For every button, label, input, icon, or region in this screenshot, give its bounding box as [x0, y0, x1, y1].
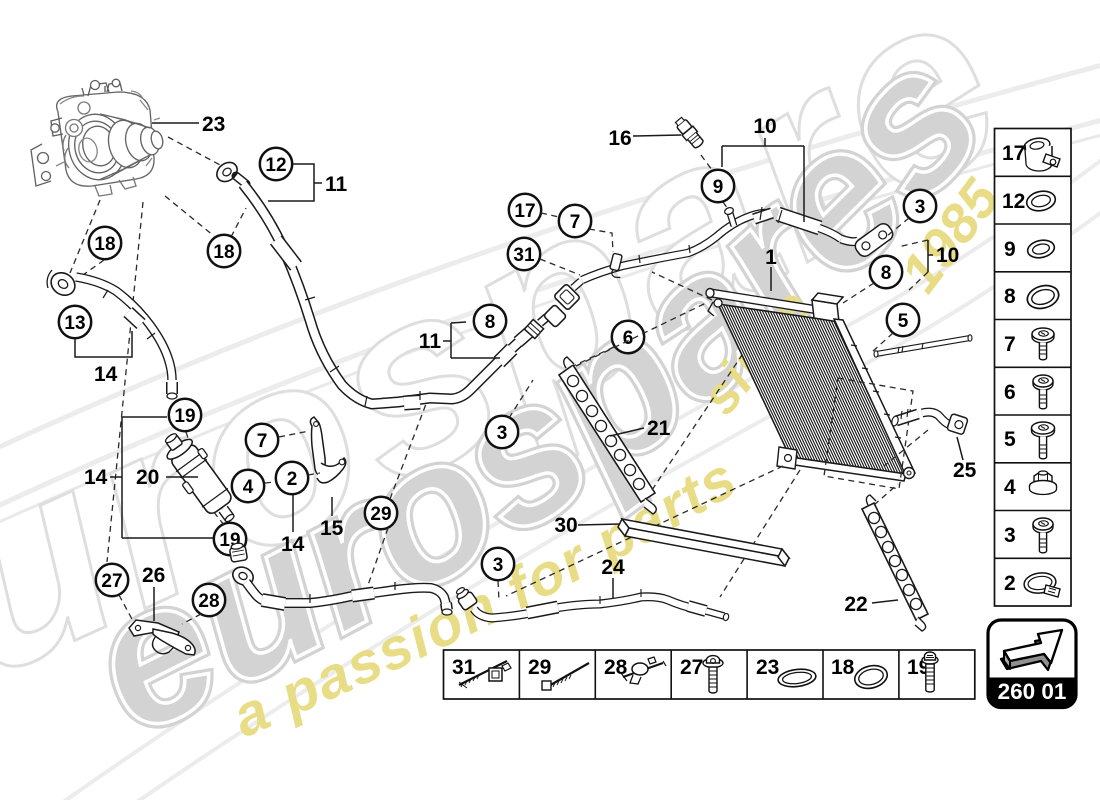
svg-text:12: 12	[265, 155, 286, 176]
svg-text:29: 29	[370, 504, 391, 525]
svg-text:17: 17	[1002, 142, 1025, 165]
svg-text:7: 7	[1004, 333, 1016, 356]
svg-text:14: 14	[94, 363, 118, 386]
svg-text:3: 3	[1004, 524, 1016, 547]
svg-text:2: 2	[287, 469, 298, 490]
svg-text:9: 9	[1004, 238, 1016, 261]
svg-text:2: 2	[1004, 572, 1016, 595]
svg-text:3: 3	[915, 197, 926, 218]
svg-text:15: 15	[320, 517, 344, 540]
svg-text:260 01: 260 01	[998, 679, 1067, 704]
svg-text:28: 28	[198, 591, 219, 612]
svg-text:10: 10	[936, 244, 959, 267]
svg-text:23: 23	[756, 656, 779, 679]
svg-text:30: 30	[554, 514, 577, 537]
svg-text:21: 21	[647, 417, 671, 440]
svg-text:17: 17	[514, 201, 535, 222]
svg-text:4: 4	[243, 477, 254, 498]
svg-text:26: 26	[142, 564, 165, 587]
svg-text:7: 7	[570, 212, 581, 233]
svg-text:23: 23	[202, 113, 225, 136]
svg-text:18: 18	[831, 656, 855, 679]
svg-text:31: 31	[452, 656, 476, 679]
svg-text:10: 10	[753, 115, 776, 138]
svg-text:25: 25	[953, 459, 977, 482]
svg-text:11: 11	[419, 330, 442, 353]
svg-text:7: 7	[257, 431, 268, 452]
svg-text:29: 29	[528, 656, 551, 679]
svg-text:3: 3	[497, 423, 508, 444]
svg-text:9: 9	[713, 177, 724, 198]
svg-text:6: 6	[1004, 381, 1016, 404]
svg-text:20: 20	[136, 466, 159, 489]
svg-text:14: 14	[84, 466, 108, 489]
svg-text:27: 27	[680, 656, 703, 679]
svg-text:16: 16	[608, 127, 631, 150]
svg-text:18: 18	[213, 242, 234, 263]
svg-text:6: 6	[623, 328, 634, 349]
svg-text:11: 11	[325, 173, 348, 196]
svg-text:13: 13	[64, 313, 85, 334]
svg-text:19: 19	[174, 406, 195, 427]
svg-text:3: 3	[493, 555, 504, 576]
svg-text:14: 14	[281, 533, 305, 556]
svg-text:8: 8	[485, 312, 496, 333]
svg-text:5: 5	[898, 311, 909, 332]
svg-text:22: 22	[844, 593, 867, 616]
svg-text:24: 24	[601, 556, 625, 579]
svg-text:12: 12	[1002, 190, 1025, 213]
svg-text:1: 1	[765, 246, 777, 269]
svg-text:18: 18	[94, 234, 115, 255]
svg-text:8: 8	[1004, 285, 1016, 308]
svg-text:4: 4	[1004, 476, 1016, 499]
svg-text:27: 27	[101, 571, 122, 592]
svg-text:5: 5	[1004, 428, 1016, 451]
svg-text:8: 8	[881, 263, 892, 284]
svg-text:31: 31	[513, 245, 535, 266]
